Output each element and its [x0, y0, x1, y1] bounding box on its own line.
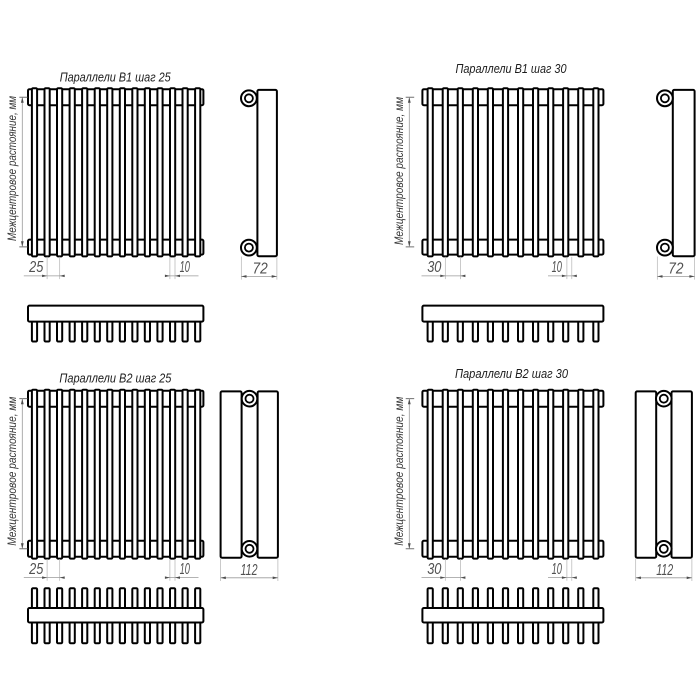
svg-text:30: 30 — [427, 259, 441, 276]
svg-text:72: 72 — [668, 260, 683, 277]
svg-text:Межцентровое растояние, мм: Межцентровое растояние, мм — [393, 397, 406, 546]
svg-text:Параллели В2 шаг 25: Параллели В2 шаг 25 — [59, 370, 172, 385]
svg-text:Параллели В1 шаг 25: Параллели В1 шаг 25 — [60, 70, 172, 85]
svg-text:10: 10 — [552, 259, 562, 276]
svg-text:Межцентровое растояние, мм: Межцентровое растояние, мм — [6, 397, 19, 546]
svg-text:10: 10 — [552, 561, 562, 578]
svg-text:Параллели В2 шаг 30: Параллели В2 шаг 30 — [455, 366, 569, 381]
svg-text:Параллели В1 шаг 30: Параллели В1 шаг 30 — [456, 61, 568, 76]
svg-text:10: 10 — [180, 259, 190, 276]
svg-text:10: 10 — [180, 561, 190, 578]
svg-text:25: 25 — [28, 561, 43, 578]
svg-text:72: 72 — [253, 260, 268, 277]
svg-text:112: 112 — [656, 562, 673, 579]
svg-text:30: 30 — [427, 561, 441, 578]
svg-text:Межцентровое растояние, мм: Межцентровое растояние, мм — [393, 97, 406, 245]
svg-text:Межцентровое растояние, мм: Межцентровое растояние, мм — [6, 96, 19, 241]
svg-text:112: 112 — [241, 562, 258, 579]
svg-text:25: 25 — [28, 259, 43, 276]
